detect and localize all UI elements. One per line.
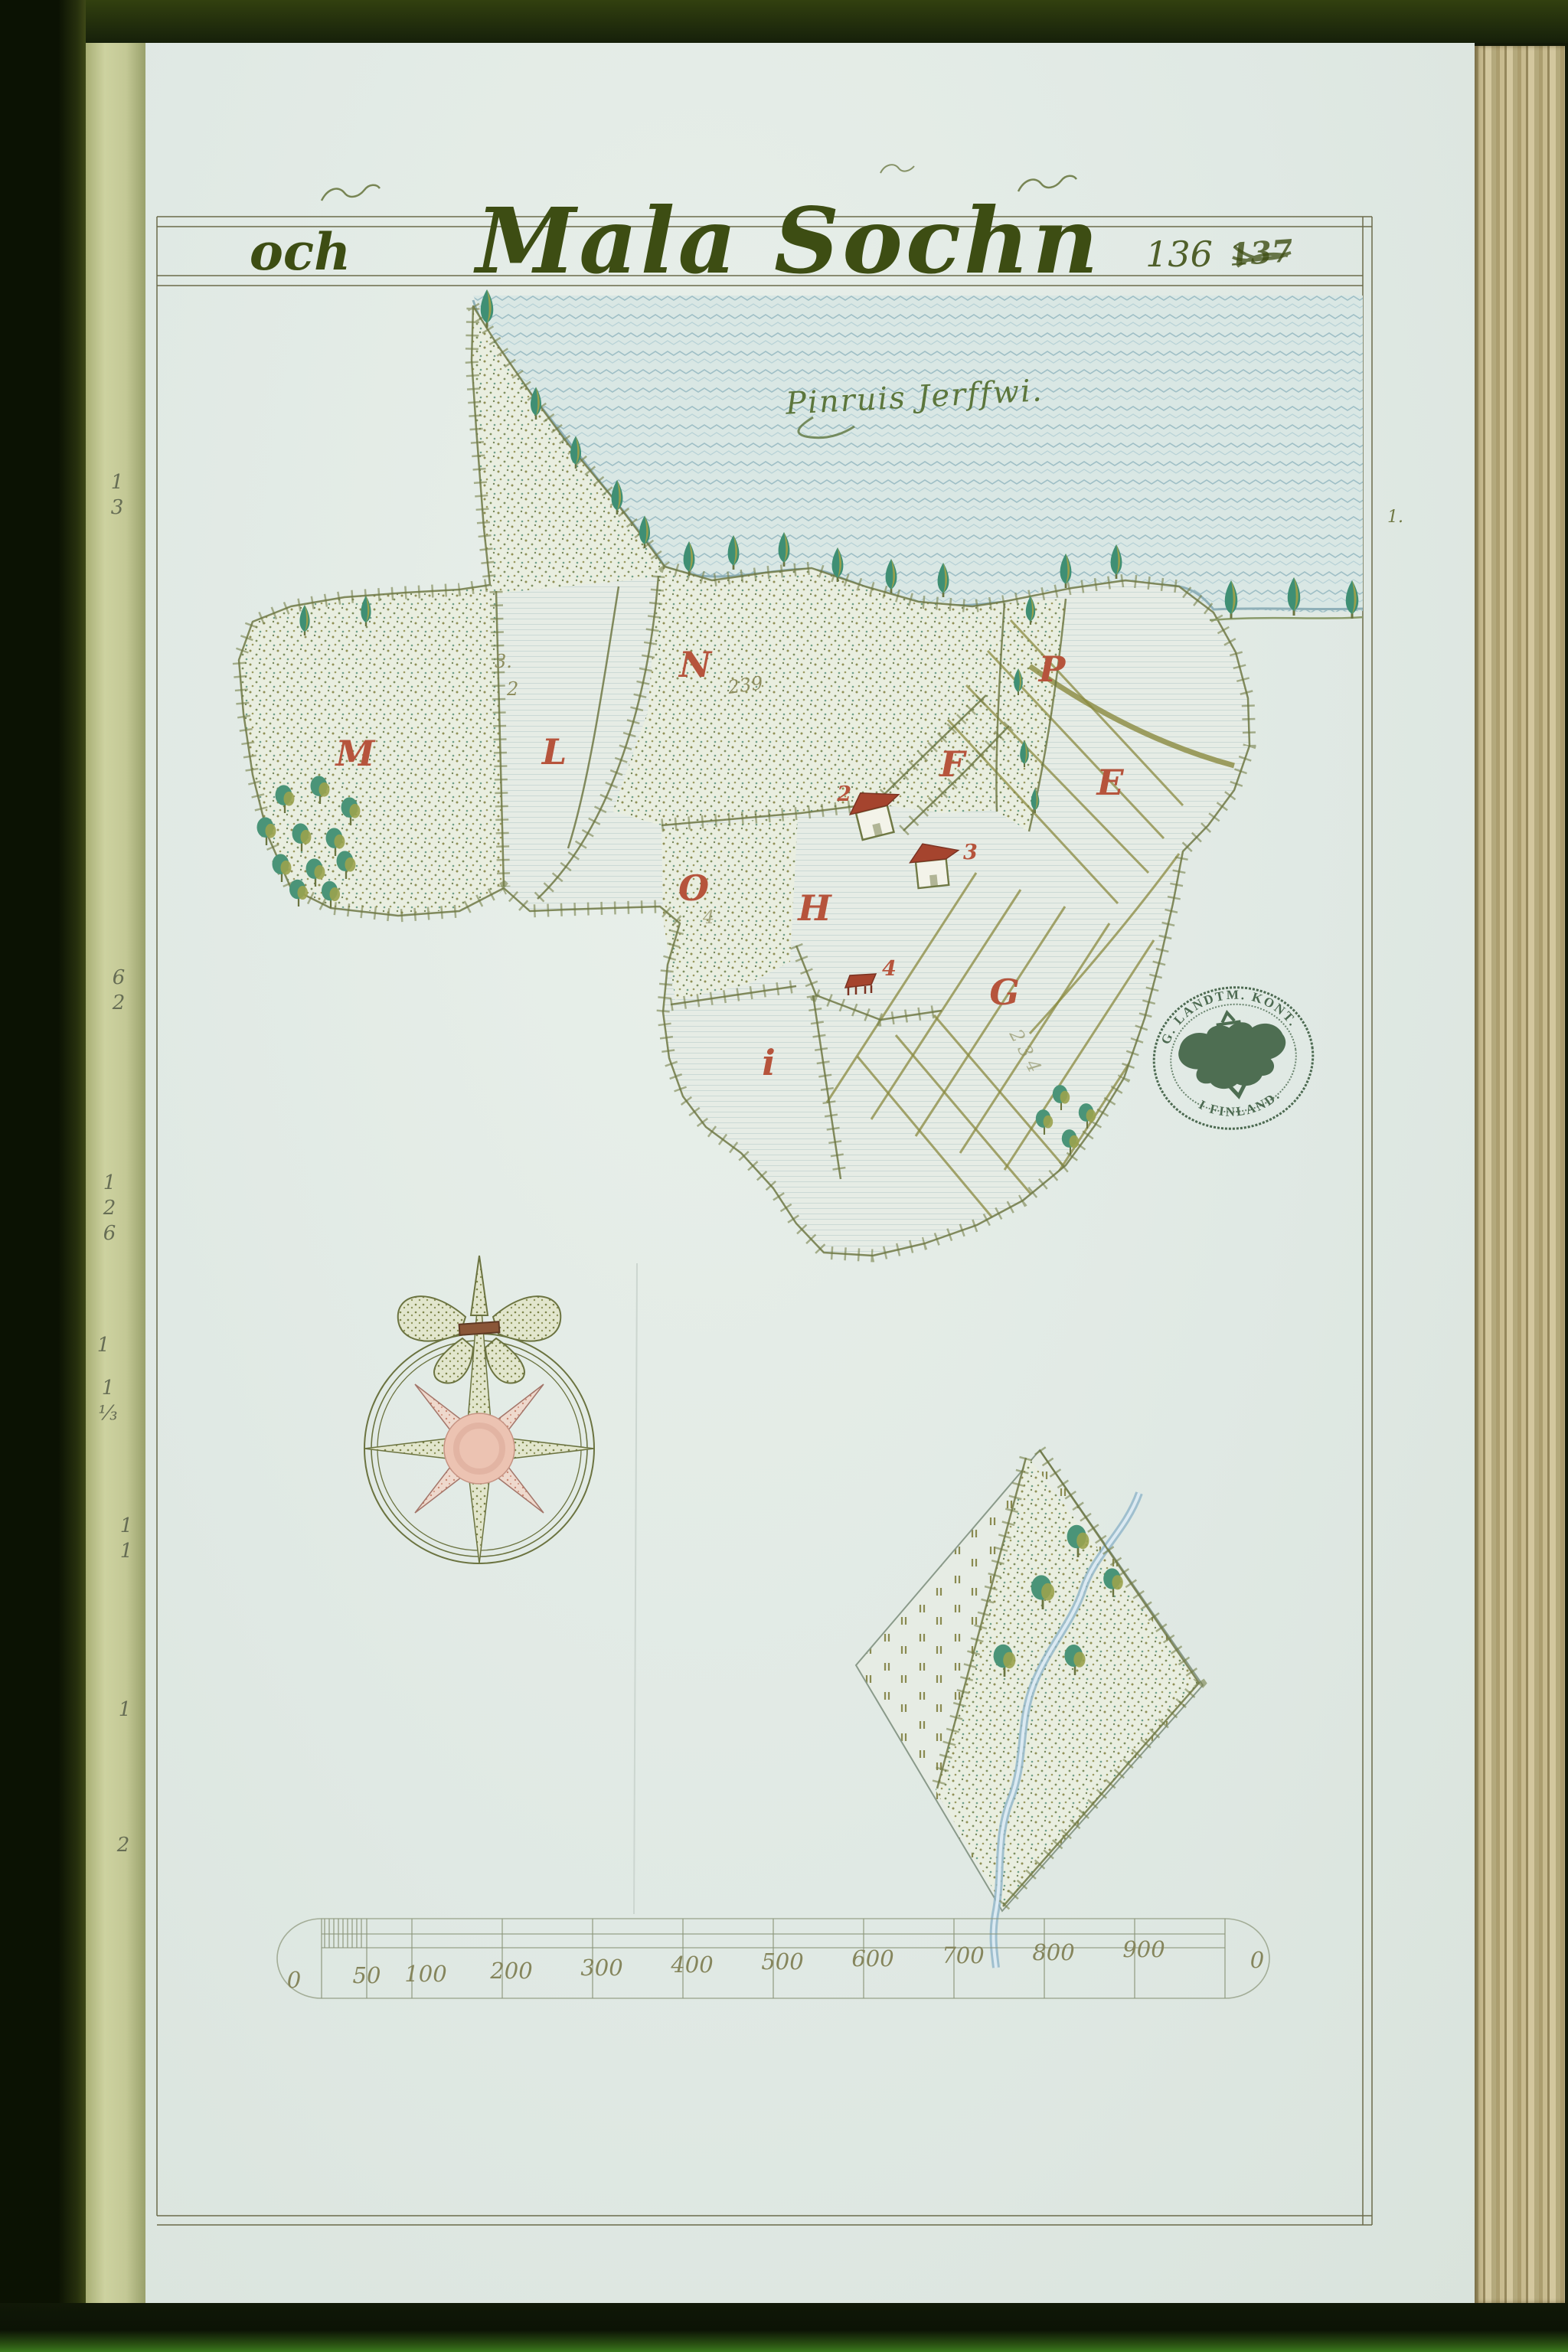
compass-rose — [364, 1256, 594, 1563]
scale-label: 900 — [1122, 1936, 1165, 1962]
scale-zero-left: 0 — [287, 1967, 301, 1993]
margin-number: 126 — [98, 1171, 121, 1247]
margin-number: 1 — [113, 1698, 136, 1723]
page-title: Mala Sochn — [473, 188, 1102, 294]
field-number: 2 — [506, 678, 518, 700]
parcel-label-o: O — [678, 867, 709, 909]
parcel-label-g: G — [989, 972, 1019, 1013]
barn-number: 4 — [882, 957, 897, 981]
scale-label: 200 — [489, 1958, 532, 1984]
title-prefix: och — [250, 222, 351, 282]
parcel-label-e: E — [1095, 762, 1124, 803]
parcel-label-p: P — [1037, 648, 1067, 690]
margin-number: 11 — [115, 1514, 138, 1565]
parcel-label-f: F — [939, 743, 968, 785]
parcel-label-l: L — [541, 731, 567, 773]
pen-flourish — [880, 165, 914, 173]
scale-label: 100 — [404, 1961, 446, 1987]
margin-number: 13 — [106, 471, 129, 521]
margin-note: 1. — [1387, 508, 1403, 527]
scale-subdivisions — [325, 1919, 361, 1948]
scale-label: 700 — [942, 1942, 984, 1968]
stream-strip — [936, 1456, 1199, 1906]
margin-number: 2 — [112, 1834, 135, 1859]
parcel-label-h: H — [796, 887, 832, 929]
page-number: 136 — [1145, 234, 1213, 275]
field-number: 4 — [702, 906, 714, 928]
paper-crease — [634, 1263, 637, 1914]
scale-label: 500 — [761, 1949, 803, 1975]
field-number: 3. — [495, 651, 512, 672]
detached-parcel — [856, 1450, 1203, 1968]
parcel-label-n: N — [678, 644, 713, 685]
scale-label: 800 — [1032, 1939, 1074, 1965]
scale-label: 50 — [353, 1962, 381, 1988]
margin-number: 1⅓ — [96, 1377, 119, 1427]
struck-number: 137 — [1228, 233, 1295, 273]
map-drawing: och Mala Sochn 136 137 1. Pinruis Jerffw… — [0, 0, 1568, 2352]
scale-label: 600 — [851, 1945, 893, 1971]
margin-number: 62 — [107, 966, 130, 1017]
scale-bar: 0 50 100 200 300 400 500 600 700 800 900… — [277, 1919, 1269, 1998]
pen-flourish — [322, 185, 380, 201]
scale-label: 400 — [670, 1952, 713, 1978]
seal-stamp: G. LANDTM. KONT. I FINLAND. — [1145, 977, 1322, 1139]
house-number: 3 — [963, 841, 978, 864]
scale-label: 300 — [580, 1955, 622, 1981]
scale-zero-right: 0 — [1250, 1947, 1264, 1973]
parcel-label-i: i — [762, 1042, 775, 1083]
house-number: 2 — [836, 782, 851, 806]
margin-number: 1 — [92, 1334, 115, 1359]
parcel-label-m: M — [335, 733, 377, 774]
